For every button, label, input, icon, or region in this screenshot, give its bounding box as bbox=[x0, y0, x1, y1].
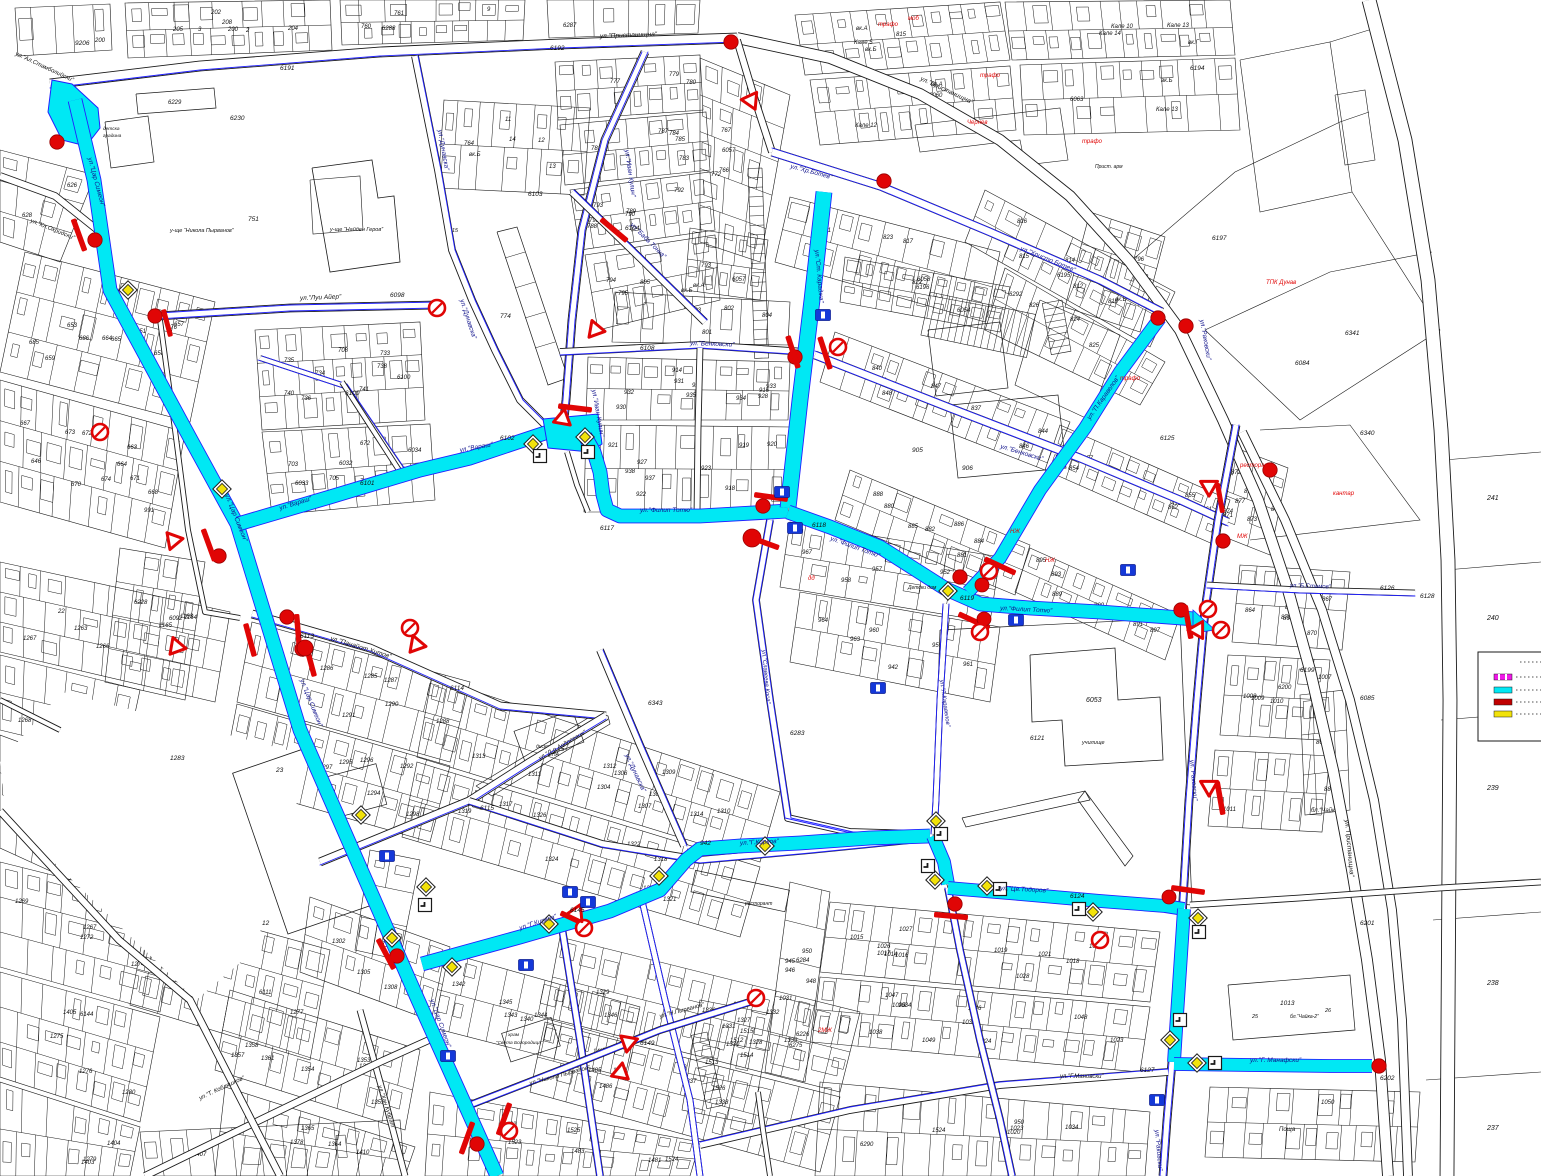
svg-text:738: 738 bbox=[377, 364, 388, 370]
svg-text:950: 950 bbox=[1014, 1120, 1025, 1126]
svg-text:бл.“Чайка-2”: бл.“Чайка-2” bbox=[1290, 1013, 1319, 1020]
svg-text:1357: 1357 bbox=[231, 1053, 245, 1059]
svg-text:6054: 6054 bbox=[957, 308, 971, 314]
svg-text:957: 957 bbox=[872, 567, 883, 573]
svg-text:1306: 1306 bbox=[614, 771, 628, 777]
svg-text:772: 772 bbox=[711, 172, 722, 178]
svg-text:921: 921 bbox=[608, 443, 618, 449]
svg-text:202: 202 bbox=[210, 10, 222, 16]
svg-text:646: 646 bbox=[31, 459, 42, 465]
svg-text:1267: 1267 bbox=[83, 925, 97, 931]
svg-text:1378: 1378 bbox=[290, 1140, 304, 1146]
svg-text:705: 705 bbox=[329, 476, 340, 482]
svg-text:1015: 1015 bbox=[850, 935, 864, 941]
svg-text:“Света Богородица”: “Света Богородица” bbox=[496, 1040, 543, 1046]
svg-text:664: 664 bbox=[117, 462, 128, 468]
svg-text:741: 741 bbox=[359, 387, 369, 393]
svg-text:1047: 1047 bbox=[885, 993, 899, 999]
svg-text:дд: дд bbox=[808, 576, 815, 582]
svg-text:6113: 6113 bbox=[300, 633, 314, 640]
svg-text:6283: 6283 bbox=[790, 730, 805, 737]
svg-text:938: 938 bbox=[625, 469, 636, 475]
svg-text:889: 889 bbox=[1052, 592, 1063, 598]
svg-text:1286: 1286 bbox=[320, 666, 334, 672]
svg-text:805: 805 bbox=[640, 280, 651, 286]
svg-text:6117: 6117 bbox=[600, 525, 614, 532]
svg-text:12: 12 bbox=[262, 920, 270, 927]
svg-text:6118: 6118 bbox=[812, 522, 826, 529]
svg-text:Кале 10: Кале 10 bbox=[1111, 24, 1134, 30]
svg-text:884: 884 bbox=[974, 539, 985, 545]
svg-text:736: 736 bbox=[301, 396, 312, 402]
svg-text:1319: 1319 bbox=[458, 809, 472, 815]
svg-text:моб: моб bbox=[908, 16, 919, 22]
svg-text:1165: 1165 bbox=[159, 623, 173, 629]
svg-text:933: 933 bbox=[766, 384, 777, 390]
svg-text:6057: 6057 bbox=[732, 277, 746, 283]
svg-text:240: 240 bbox=[1486, 615, 1499, 622]
svg-text:6288: 6288 bbox=[382, 26, 396, 32]
svg-text:6149: 6149 bbox=[640, 1040, 655, 1047]
svg-text:794: 794 bbox=[606, 278, 617, 284]
svg-text:767: 767 bbox=[721, 128, 732, 134]
svg-text:1038: 1038 bbox=[869, 1030, 883, 1036]
svg-text:6058: 6058 bbox=[917, 277, 931, 283]
svg-text:1294: 1294 bbox=[367, 791, 381, 797]
svg-text:6127: 6127 bbox=[1140, 1067, 1155, 1074]
svg-text:672: 672 bbox=[360, 441, 371, 447]
svg-text:6032: 6032 bbox=[339, 461, 353, 467]
svg-text:905: 905 bbox=[912, 447, 923, 454]
svg-text:1017: 1017 bbox=[877, 951, 891, 957]
svg-text:824: 824 bbox=[1070, 317, 1081, 323]
svg-text:777: 777 bbox=[610, 79, 621, 85]
svg-text:788: 788 bbox=[587, 224, 598, 230]
svg-text:855: 855 bbox=[1185, 493, 1196, 499]
svg-text:1034: 1034 bbox=[1065, 1125, 1079, 1131]
svg-text:6197: 6197 bbox=[1212, 235, 1227, 242]
svg-text:1483: 1483 bbox=[571, 1149, 585, 1155]
svg-text:22: 22 bbox=[57, 609, 65, 615]
svg-text:1287: 1287 bbox=[384, 678, 398, 684]
svg-text:1307: 1307 bbox=[638, 804, 652, 810]
svg-text:6199: 6199 bbox=[1300, 667, 1315, 674]
svg-text:885: 885 bbox=[908, 524, 919, 530]
svg-text:6128: 6128 bbox=[1420, 593, 1435, 600]
svg-text:6292: 6292 bbox=[1009, 292, 1023, 298]
svg-text:1276: 1276 bbox=[79, 1069, 93, 1075]
svg-text:964: 964 bbox=[818, 618, 829, 624]
svg-text:6191: 6191 bbox=[280, 65, 295, 72]
svg-text:1523: 1523 bbox=[508, 1140, 522, 1146]
svg-text:6033: 6033 bbox=[295, 481, 309, 487]
svg-text:25: 25 bbox=[1251, 1014, 1259, 1020]
svg-text:942: 942 bbox=[700, 840, 711, 847]
svg-text:205: 205 bbox=[172, 27, 184, 33]
svg-text:6085: 6085 bbox=[1360, 695, 1375, 702]
svg-text:12: 12 bbox=[538, 138, 545, 144]
svg-text:823: 823 bbox=[883, 235, 894, 241]
svg-text:вк.Б: вк.Б bbox=[1161, 78, 1173, 84]
svg-text:663: 663 bbox=[127, 445, 138, 451]
svg-text:844: 844 bbox=[1038, 429, 1049, 435]
svg-text:1263: 1263 bbox=[74, 626, 88, 632]
svg-text:967: 967 bbox=[802, 550, 813, 556]
svg-text:686: 686 bbox=[79, 336, 90, 342]
svg-text:Детски дом: Детски дом bbox=[907, 585, 937, 591]
svg-text:761: 761 bbox=[394, 11, 404, 17]
svg-text:6108: 6108 bbox=[640, 345, 655, 352]
svg-text:6100: 6100 bbox=[345, 390, 360, 397]
svg-text:23: 23 bbox=[275, 767, 284, 774]
svg-text:780: 780 bbox=[686, 80, 697, 86]
svg-text:932: 932 bbox=[624, 390, 635, 396]
svg-text:200: 200 bbox=[227, 27, 239, 33]
svg-text:ул.”Г.Мановски”: ул.”Г.Мановски” bbox=[1059, 1074, 1105, 1080]
svg-text:6287: 6287 bbox=[563, 23, 577, 29]
svg-text:6284: 6284 bbox=[796, 958, 810, 964]
svg-text:6226: 6226 bbox=[796, 1032, 810, 1038]
svg-text:6103: 6103 bbox=[528, 191, 543, 198]
svg-text:14: 14 bbox=[509, 137, 516, 143]
svg-text:950: 950 bbox=[802, 949, 813, 955]
svg-text:1019: 1019 bbox=[994, 948, 1008, 954]
svg-text:1302: 1302 bbox=[332, 939, 346, 945]
svg-text:1007: 1007 bbox=[1318, 675, 1332, 681]
svg-text:922: 922 bbox=[636, 492, 647, 498]
svg-text:877: 877 bbox=[1235, 499, 1246, 505]
svg-text:6053: 6053 bbox=[1086, 697, 1102, 704]
svg-text:6104: 6104 bbox=[625, 225, 640, 232]
svg-text:991: 991 bbox=[144, 508, 154, 514]
svg-text:детска: детска bbox=[103, 126, 120, 132]
svg-text:237: 237 bbox=[1486, 1125, 1500, 1132]
svg-text:888: 888 bbox=[873, 492, 884, 498]
svg-text:вк.А: вк.А bbox=[693, 283, 705, 289]
svg-text:1346: 1346 bbox=[604, 1013, 618, 1019]
svg-text:792: 792 bbox=[674, 188, 685, 194]
svg-text:6229: 6229 bbox=[168, 100, 182, 106]
svg-text:1361: 1361 bbox=[261, 1056, 274, 1062]
svg-text:Чернев: Чернев bbox=[967, 120, 987, 126]
svg-text:208: 208 bbox=[221, 20, 233, 26]
svg-text:6111: 6111 bbox=[259, 990, 271, 996]
svg-text:1290: 1290 bbox=[385, 702, 399, 708]
svg-text:1524: 1524 bbox=[665, 1157, 679, 1163]
svg-text:816: 816 bbox=[1017, 219, 1028, 225]
svg-text:1344: 1344 bbox=[534, 1013, 548, 1019]
svg-text:6200: 6200 bbox=[1278, 685, 1292, 691]
svg-text:948: 948 bbox=[806, 979, 817, 985]
svg-text:795: 795 bbox=[618, 291, 629, 297]
svg-text:793: 793 bbox=[701, 263, 712, 269]
svg-text:1023: 1023 bbox=[1110, 1038, 1124, 1044]
svg-text:1340: 1340 bbox=[520, 1017, 534, 1023]
svg-text:817: 817 bbox=[903, 239, 914, 245]
svg-text:1272: 1272 bbox=[80, 935, 94, 941]
svg-text:1327: 1327 bbox=[737, 1018, 751, 1024]
svg-text:825: 825 bbox=[1089, 343, 1100, 349]
svg-text:трафо: трафо bbox=[980, 73, 1001, 79]
svg-text:793: 793 bbox=[593, 203, 604, 209]
svg-text:НЖ: НЖ bbox=[1045, 558, 1055, 564]
svg-text:Прист. арм: Прист. арм bbox=[1095, 164, 1123, 170]
svg-text:Кале 12: Кале 12 bbox=[855, 123, 878, 129]
svg-text:градина: градина bbox=[103, 133, 122, 139]
svg-text:937: 937 bbox=[645, 476, 656, 482]
svg-text:6057: 6057 bbox=[722, 148, 736, 154]
svg-text:6063: 6063 bbox=[1070, 97, 1084, 103]
svg-text:882: 882 bbox=[925, 527, 936, 533]
svg-text:733: 733 bbox=[380, 351, 391, 357]
svg-text:665: 665 bbox=[111, 337, 122, 343]
svg-text:1313: 1313 bbox=[472, 754, 486, 760]
svg-text:1304: 1304 bbox=[597, 785, 611, 791]
svg-text:685: 685 bbox=[29, 340, 40, 346]
svg-text:804: 804 bbox=[762, 313, 773, 319]
svg-text:1515: 1515 bbox=[740, 1029, 754, 1035]
svg-text:958: 958 bbox=[841, 578, 852, 584]
svg-text:6201: 6201 bbox=[1360, 920, 1375, 927]
svg-text:927: 927 bbox=[637, 460, 648, 466]
svg-text:1328: 1328 bbox=[749, 1040, 763, 1046]
svg-text:239: 239 bbox=[1486, 785, 1499, 792]
svg-text:1295: 1295 bbox=[339, 760, 353, 766]
svg-text:6145: 6145 bbox=[570, 907, 585, 914]
svg-text:1317: 1317 bbox=[499, 802, 513, 808]
svg-text:667: 667 bbox=[20, 421, 31, 427]
svg-text:671: 671 bbox=[130, 476, 140, 482]
svg-text:Кале 13: Кале 13 bbox=[1167, 23, 1190, 29]
svg-text:6084: 6084 bbox=[1295, 360, 1310, 367]
svg-text:у-ще “Никола Пырванов”: у-ще “Никола Пырванов” bbox=[169, 228, 235, 234]
svg-text:ул.”Г. Манафски”: ул.”Г. Манафски” bbox=[1249, 1057, 1302, 1064]
svg-text:802: 802 bbox=[724, 306, 735, 312]
svg-text:1358: 1358 bbox=[245, 1043, 259, 1049]
svg-text:893: 893 bbox=[1051, 572, 1062, 578]
svg-text:928: 928 bbox=[758, 394, 769, 400]
svg-text:848: 848 bbox=[882, 391, 893, 397]
svg-text:847: 847 bbox=[931, 384, 942, 390]
svg-text:659: 659 bbox=[45, 356, 56, 362]
svg-text:1524: 1524 bbox=[932, 1128, 946, 1134]
svg-text:919: 919 bbox=[739, 443, 750, 449]
svg-text:1314: 1314 bbox=[690, 812, 704, 818]
svg-text:1305: 1305 bbox=[357, 970, 371, 976]
svg-text:1326: 1326 bbox=[533, 813, 547, 819]
svg-text:6228: 6228 bbox=[134, 600, 148, 606]
svg-text:1016: 1016 bbox=[895, 953, 909, 959]
svg-text:6340: 6340 bbox=[1360, 430, 1375, 437]
svg-text:897: 897 bbox=[1150, 628, 1161, 634]
svg-text:783: 783 bbox=[679, 156, 690, 162]
svg-text:6202: 6202 bbox=[1380, 1075, 1395, 1082]
svg-text:1026: 1026 bbox=[877, 944, 891, 950]
svg-text:6196: 6196 bbox=[916, 285, 930, 291]
svg-text:1266: 1266 bbox=[96, 644, 110, 650]
svg-text:815: 815 bbox=[896, 32, 907, 38]
svg-text:Поща: Поща bbox=[1279, 1127, 1296, 1133]
svg-text:873: 873 bbox=[1247, 517, 1258, 523]
svg-text:6101: 6101 bbox=[360, 480, 375, 487]
svg-text:1324: 1324 bbox=[545, 857, 559, 863]
svg-text:751: 751 bbox=[248, 216, 259, 223]
svg-text:Кале 13: Кале 13 bbox=[1156, 107, 1179, 113]
svg-text:1343: 1343 bbox=[504, 1013, 518, 1019]
svg-text:779: 779 bbox=[669, 72, 680, 78]
svg-text:774: 774 bbox=[500, 313, 511, 320]
svg-text:870: 870 bbox=[1307, 631, 1318, 637]
svg-text:13: 13 bbox=[549, 164, 556, 170]
svg-text:670: 670 bbox=[71, 482, 82, 488]
svg-text:1275: 1275 bbox=[50, 1034, 64, 1040]
svg-text:1292: 1292 bbox=[400, 764, 414, 770]
svg-text:1018: 1018 bbox=[1066, 959, 1080, 965]
svg-text:6230: 6230 bbox=[230, 115, 245, 122]
svg-text:1028: 1028 bbox=[1016, 974, 1030, 980]
svg-text:864: 864 bbox=[1245, 608, 1256, 614]
svg-text:1267: 1267 bbox=[23, 636, 37, 642]
svg-text:935: 935 bbox=[686, 393, 697, 399]
svg-text:1021: 1021 bbox=[1038, 952, 1051, 958]
svg-text:653: 653 bbox=[67, 323, 78, 329]
svg-text:6341: 6341 bbox=[1345, 330, 1360, 337]
svg-text:708: 708 bbox=[338, 348, 349, 354]
svg-text:801: 801 bbox=[702, 330, 712, 336]
svg-text:930: 930 bbox=[616, 405, 627, 411]
svg-text:1268: 1268 bbox=[18, 718, 32, 724]
svg-text:1049: 1049 bbox=[922, 1038, 936, 1044]
svg-text:6343: 6343 bbox=[648, 700, 663, 707]
svg-text:923: 923 bbox=[701, 466, 712, 472]
svg-text:1514: 1514 bbox=[740, 1053, 754, 1059]
svg-text:674: 674 bbox=[101, 477, 112, 483]
svg-text:вк.А: вк.А bbox=[856, 26, 868, 32]
svg-text:673: 673 bbox=[65, 430, 76, 436]
svg-text:241: 241 bbox=[1486, 495, 1499, 502]
svg-text:трафо: трафо bbox=[1082, 139, 1103, 145]
svg-text:1009: 1009 bbox=[1251, 696, 1265, 702]
svg-text:6114: 6114 bbox=[450, 685, 464, 692]
svg-text:1309: 1309 bbox=[662, 770, 676, 776]
svg-text:6290: 6290 bbox=[860, 1142, 874, 1148]
svg-text:6125: 6125 bbox=[1160, 435, 1175, 442]
svg-text:785: 785 bbox=[675, 137, 686, 143]
svg-text:Кале 5: Кале 5 bbox=[854, 40, 873, 46]
svg-text:740: 740 bbox=[284, 391, 295, 397]
svg-text:9206: 9206 bbox=[75, 40, 90, 47]
svg-text:961: 961 bbox=[963, 662, 973, 668]
svg-text:6192: 6192 bbox=[550, 45, 565, 52]
svg-text:1285: 1285 bbox=[364, 674, 378, 680]
svg-text:1291: 1291 bbox=[342, 713, 355, 719]
svg-text:11: 11 bbox=[505, 117, 511, 123]
svg-text:1013: 1013 bbox=[1280, 1000, 1295, 1007]
svg-text:1486: 1486 bbox=[599, 1084, 613, 1090]
svg-text:6098: 6098 bbox=[390, 292, 405, 299]
svg-text:204: 204 bbox=[287, 26, 299, 32]
svg-text:вк.Г: вк.Г bbox=[1188, 40, 1200, 46]
svg-text:891: 891 bbox=[1133, 622, 1143, 628]
svg-text:1048: 1048 bbox=[1074, 1015, 1088, 1021]
svg-text:1034: 1034 bbox=[898, 1003, 912, 1009]
svg-text:1321: 1321 bbox=[663, 897, 676, 903]
svg-text:790: 790 bbox=[625, 212, 636, 218]
svg-text:вк.Б: вк.Б bbox=[469, 152, 481, 158]
svg-text:1164: 1164 bbox=[184, 615, 198, 621]
svg-text:ул.”Филип Тотю”: ул.”Филип Тотю” bbox=[639, 507, 693, 514]
svg-text:931: 931 bbox=[674, 379, 684, 385]
svg-text:6194: 6194 bbox=[1190, 65, 1205, 72]
svg-text:1269: 1269 bbox=[15, 899, 29, 905]
svg-text:906: 906 bbox=[962, 465, 973, 472]
svg-text:1031: 1031 bbox=[779, 996, 792, 1002]
svg-text:920: 920 bbox=[767, 442, 778, 448]
svg-text:15: 15 bbox=[452, 228, 459, 234]
svg-text:840: 840 bbox=[872, 366, 883, 372]
svg-text:трафо: трафо bbox=[1120, 376, 1141, 382]
svg-text:1288: 1288 bbox=[436, 719, 450, 725]
svg-text:1010: 1010 bbox=[1270, 699, 1284, 705]
svg-text:1512: 1512 bbox=[730, 1038, 744, 1044]
svg-text:735: 735 bbox=[284, 358, 295, 364]
svg-text:6092: 6092 bbox=[169, 616, 183, 622]
svg-text:960: 960 bbox=[869, 628, 880, 634]
svg-text:1027: 1027 bbox=[899, 927, 913, 933]
svg-text:ресторант: ресторант bbox=[744, 901, 772, 907]
svg-text:668: 668 bbox=[148, 490, 159, 496]
svg-text:НЖ: НЖ bbox=[1010, 529, 1020, 535]
svg-text:942: 942 bbox=[888, 665, 899, 671]
svg-text:вк.Б: вк.Б bbox=[865, 47, 877, 53]
svg-text:837: 837 bbox=[971, 406, 982, 412]
svg-text:886: 886 bbox=[954, 522, 965, 528]
svg-text:6126: 6126 bbox=[1380, 585, 1395, 592]
svg-text:1364: 1364 bbox=[328, 1142, 342, 1148]
svg-text:1525: 1525 bbox=[567, 1128, 581, 1134]
svg-text:1308: 1308 bbox=[384, 985, 398, 991]
svg-text:ресторант: ресторант bbox=[1239, 463, 1273, 469]
svg-text:2МЖ: 2МЖ bbox=[817, 1028, 832, 1034]
svg-text:ТПК Дунав: ТПК Дунав bbox=[1266, 280, 1296, 286]
svg-text:963: 963 bbox=[850, 637, 861, 643]
svg-text:6195: 6195 bbox=[1057, 273, 1071, 279]
svg-text:764: 764 bbox=[464, 141, 475, 147]
svg-text:1283: 1283 bbox=[170, 755, 185, 762]
svg-text:26: 26 bbox=[1324, 1008, 1332, 1014]
svg-text:6100: 6100 bbox=[397, 375, 411, 381]
svg-text:918: 918 bbox=[725, 486, 736, 492]
svg-text:6144: 6144 bbox=[80, 1012, 94, 1018]
svg-text:1312: 1312 bbox=[603, 764, 617, 770]
svg-text:1280: 1280 bbox=[122, 1090, 136, 1096]
svg-text:6115: 6115 bbox=[480, 805, 494, 812]
svg-text:1365: 1365 bbox=[301, 1126, 315, 1132]
svg-text:934: 934 bbox=[736, 396, 747, 402]
svg-text:760: 760 bbox=[361, 24, 372, 30]
svg-text:6102: 6102 bbox=[500, 435, 515, 442]
svg-text:1403: 1403 bbox=[81, 1160, 95, 1166]
svg-text:ул.”Луи Айер”: ул.”Луи Айер” bbox=[299, 293, 342, 303]
svg-text:кантар: кантар bbox=[1333, 491, 1355, 497]
svg-text:6275: 6275 bbox=[789, 1043, 803, 1049]
svg-text:1345: 1345 bbox=[499, 1000, 513, 1006]
svg-text:1405: 1405 bbox=[63, 1010, 77, 1016]
svg-text:880: 880 bbox=[884, 504, 895, 510]
svg-text:1310: 1310 bbox=[717, 809, 731, 815]
svg-text:1023: 1023 bbox=[1010, 1126, 1024, 1132]
svg-text:6121: 6121 bbox=[1030, 735, 1045, 742]
